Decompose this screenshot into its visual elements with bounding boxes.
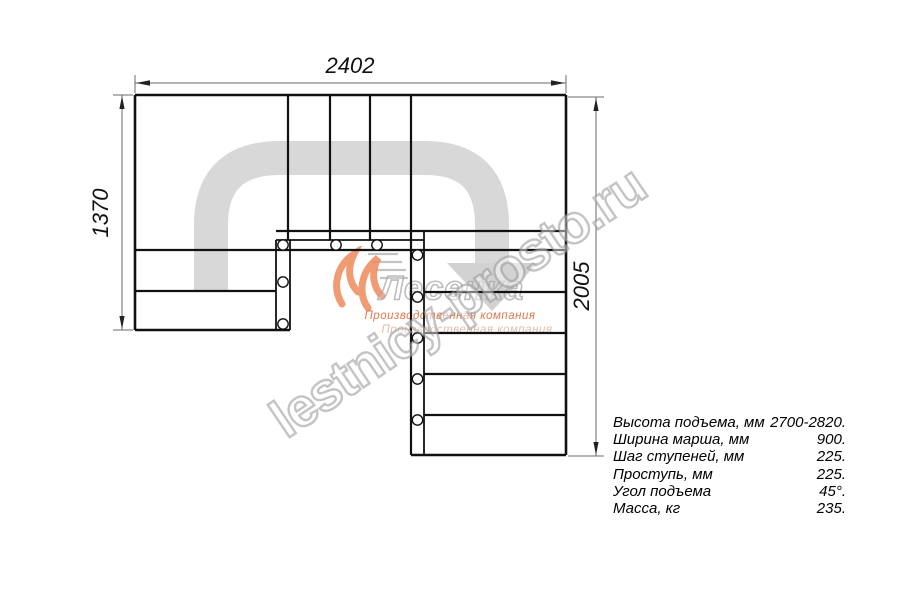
spec-value: 225.: [817, 448, 846, 465]
spec-row-mass: Масса, кг 235.: [613, 500, 846, 517]
spec-row-march-width: Ширина марша, мм 900.: [613, 431, 846, 448]
spec-row-angle: Угол подъема 45°.: [613, 483, 846, 500]
spec-label: Масса, кг: [613, 500, 680, 517]
spec-value: 2700-2820.: [770, 414, 846, 431]
watermark-text: lestnicy-prosto.ru: [259, 154, 657, 450]
spec-label: Угол подъема: [613, 483, 711, 500]
spec-value: 900.: [817, 431, 846, 448]
spec-row-tread: Проступь, мм 225.: [613, 466, 846, 483]
staircase-drawing-page: Лесенка Производственная компания Произв…: [0, 0, 900, 600]
dimension-right-height-label: 2005: [569, 262, 595, 311]
dimension-left-height-label: 1370: [88, 189, 114, 238]
spec-row-step-pitch: Шаг ступеней, мм 225.: [613, 448, 846, 465]
spec-label: Проступь, мм: [613, 466, 713, 483]
spec-value: 225.: [817, 466, 846, 483]
spec-label: Шаг ступеней, мм: [613, 448, 744, 465]
spec-value: 235.: [817, 500, 846, 517]
spec-row-height: Высота подъема, мм 2700-2820.: [613, 414, 846, 431]
spec-label: Ширина марша, мм: [613, 431, 749, 448]
dimension-top-width-label: 2402: [326, 53, 375, 79]
spec-value: 45°.: [819, 483, 846, 500]
specs-table: Высота подъема, мм 2700-2820. Ширина мар…: [613, 414, 846, 517]
spec-label: Высота подъема, мм: [613, 414, 765, 431]
